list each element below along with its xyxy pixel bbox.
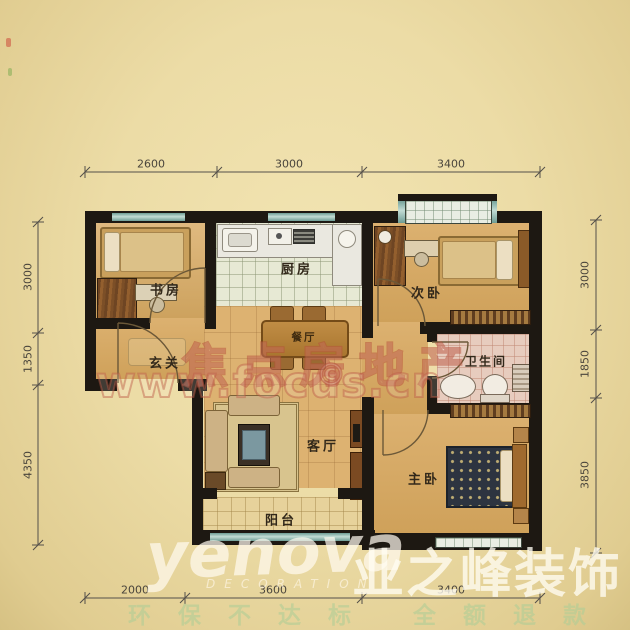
wall-center-lower (362, 397, 374, 545)
bedroom2-wardrobe-knob (378, 230, 392, 244)
kitchen-window (268, 213, 335, 221)
dim-right-1: 3000 (579, 261, 592, 289)
kitchen-fridge-icon (338, 230, 356, 248)
room-label-entry: 玄关 (149, 353, 181, 372)
kitchen-grill (293, 229, 315, 244)
bathroom-radiator (512, 364, 530, 392)
study-bed-pillow (104, 232, 120, 272)
dim-bottom-2: 3600 (259, 584, 287, 597)
bay-window-side (398, 200, 405, 223)
study-chair (149, 297, 165, 313)
study-wardrobe (97, 278, 137, 322)
bay-window-top-wall (398, 194, 497, 201)
master-nightstand (513, 508, 529, 524)
kitchen-sink-basin (228, 233, 252, 247)
balcony-window (210, 533, 350, 541)
dim-left-2: 1350 (22, 345, 35, 373)
floorplan-page: 2600 3000 3400 2000 3600 3400 3000 1350 … (0, 0, 630, 630)
dim-right-3: 3850 (579, 461, 592, 489)
dim-right-2: 1850 (579, 350, 592, 378)
room-label-bathroom: 卫生间 (465, 353, 507, 370)
room-label-living: 客厅 (307, 436, 339, 455)
paper-speck-red (6, 38, 11, 47)
wall-left-lower (192, 379, 203, 545)
kitchen-hob-burner (276, 233, 282, 239)
living-coffee-table-glass (242, 430, 266, 460)
bedroom2-low-cabinet (450, 310, 531, 325)
bathroom-toilet-tank (480, 394, 510, 403)
wall-entry-step-a (85, 379, 117, 391)
wall-study-right (205, 211, 216, 329)
room-label-balcony: 阳台 (265, 510, 297, 529)
wall-bath-left-a (427, 334, 437, 342)
study-bed-mattress (120, 232, 184, 272)
wall-balcony-divider-b (338, 488, 363, 499)
wall-study-bottom (85, 318, 150, 329)
living-sofa-top (228, 395, 280, 416)
living-tv (353, 424, 360, 442)
wall-center-upper (362, 211, 373, 338)
bedroom2-bed-pillow (496, 240, 513, 280)
wall-balcony-divider-a (203, 488, 217, 499)
dim-left-3: 4350 (22, 451, 35, 479)
paper-speck-green (8, 68, 12, 76)
room-label-master: 主卧 (408, 469, 440, 488)
master-top-shelf (450, 404, 531, 418)
watermark-brand-sub: DECORATION (206, 577, 376, 591)
dim-top-2: 3000 (275, 158, 303, 171)
room-label-kitchen: 厨房 (281, 259, 313, 278)
dim-bottom-3: 3400 (437, 584, 465, 597)
room-label-study: 书房 (150, 280, 182, 299)
wall-right (529, 211, 542, 551)
dim-top-1: 2600 (137, 158, 165, 171)
bay-window-glass (405, 200, 492, 224)
bedroom2-chair (414, 252, 429, 267)
master-nightstand (513, 427, 529, 443)
dim-bottom-1: 2000 (121, 584, 149, 597)
bedroom2-bed-mattress (442, 241, 496, 279)
dim-top-3: 3400 (437, 158, 465, 171)
living-sofa-bottom (228, 467, 280, 488)
room-label-bedroom2: 次卧 (411, 283, 443, 302)
dim-left-1: 3000 (22, 263, 35, 291)
wall-left-upper (85, 211, 96, 391)
living-sofa-left (205, 410, 228, 472)
study-window (112, 213, 185, 221)
bathroom-sink (440, 374, 476, 399)
master-headboard (512, 444, 527, 508)
master-window (435, 537, 522, 548)
watermark-slogan: 环保不达标 全额退款 (128, 596, 613, 630)
room-label-dining: 餐厅 (292, 330, 317, 345)
